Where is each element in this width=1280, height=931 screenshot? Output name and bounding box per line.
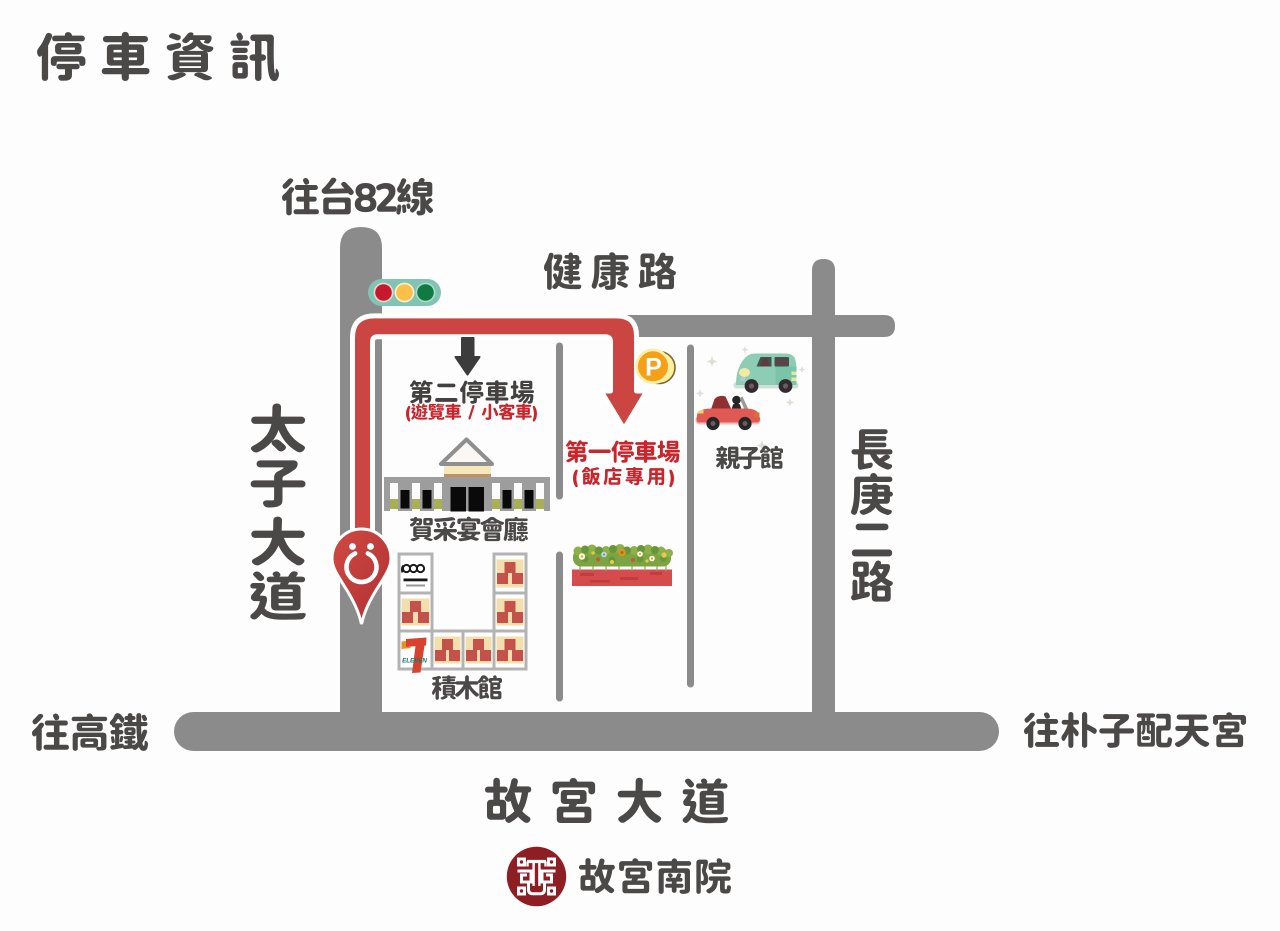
svg-text:ELEVEN: ELEVEN: [402, 658, 427, 665]
svg-text:P: P: [645, 354, 662, 382]
